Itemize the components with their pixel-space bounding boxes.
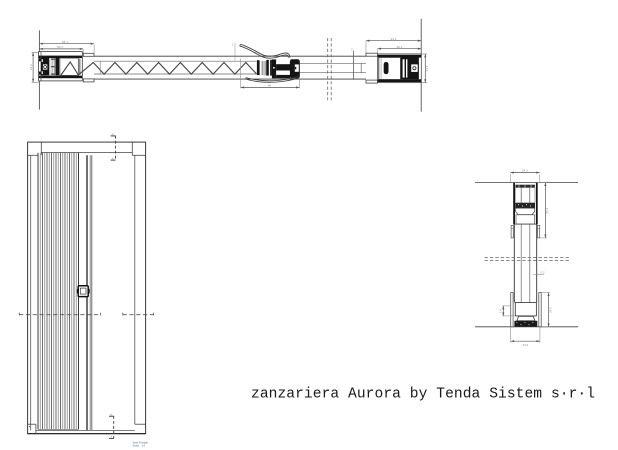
svg-text:1: 1 xyxy=(232,43,234,47)
svg-text:24.2: 24.2 xyxy=(522,169,528,173)
svg-text:Scala 1:6: Scala 1:6 xyxy=(133,445,146,448)
svg-text:24.2: 24.2 xyxy=(425,65,429,71)
svg-text:50.1: 50.1 xyxy=(57,45,63,49)
svg-text:2: 2 xyxy=(351,47,353,51)
svg-text:40.1: 40.1 xyxy=(397,45,403,49)
svg-text:55.1: 55.1 xyxy=(545,207,549,213)
svg-text:24.2: 24.2 xyxy=(522,343,528,347)
svg-text:A: A xyxy=(110,435,112,439)
svg-text:40: 40 xyxy=(268,83,272,87)
svg-text:A: A xyxy=(112,132,114,136)
svg-text:24.2: 24.2 xyxy=(29,64,33,70)
svg-text:A: A xyxy=(110,412,112,416)
svg-text:A: A xyxy=(112,156,114,160)
svg-text:zanzariera Aurora by Tenda Sis: zanzariera Aurora by Tenda Sistem s·r·l xyxy=(251,386,595,402)
svg-text:34.2: 34.2 xyxy=(548,307,552,313)
svg-text:44.2: 44.2 xyxy=(391,37,397,41)
svg-text:7.8: 7.8 xyxy=(499,309,503,313)
svg-text:55.1: 55.1 xyxy=(62,40,68,44)
svg-text:2.2: 2.2 xyxy=(540,271,544,275)
